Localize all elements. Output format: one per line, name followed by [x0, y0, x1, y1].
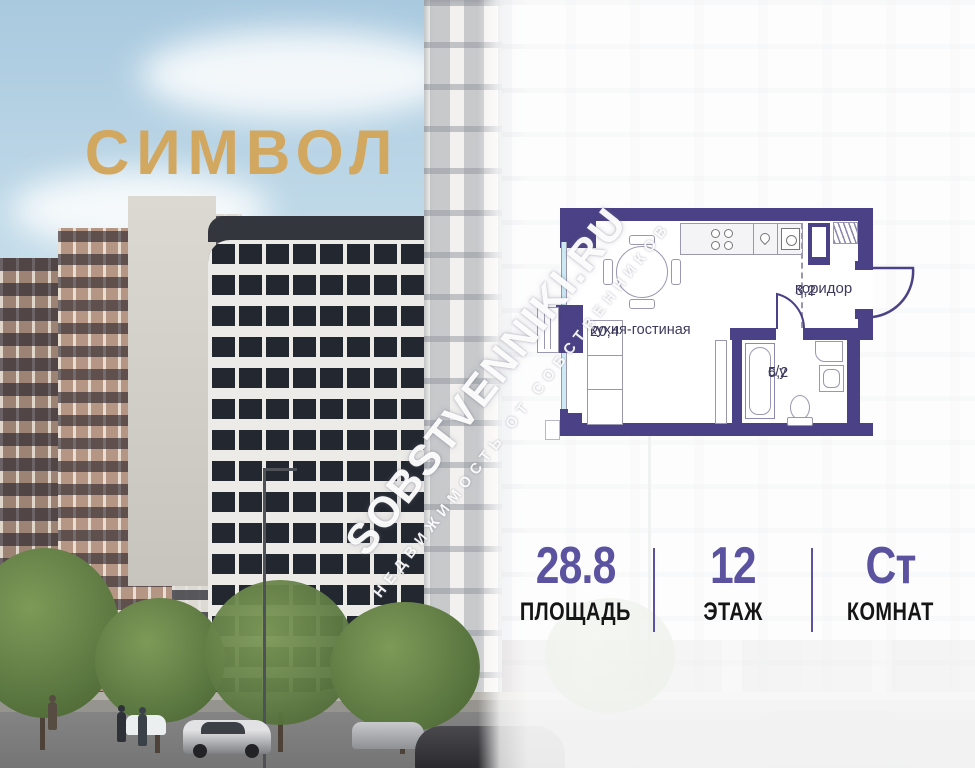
wall	[560, 208, 873, 221]
bathroom-sink	[819, 365, 844, 392]
pedestrian	[117, 712, 126, 742]
wall	[732, 328, 742, 428]
floor-plan: кухня-гостиная 20,4 коридор 3,2 с/у 5,2	[537, 195, 929, 457]
window	[561, 353, 567, 411]
chair	[671, 259, 681, 285]
stats-bar: 28.8 ПЛОЩАДЬ 12 ЭТАЖ Ст КОМНАТ	[498, 540, 968, 640]
stat-rooms-label: КОМНАТ	[836, 600, 945, 625]
facade-box	[545, 420, 560, 440]
wall	[847, 328, 860, 428]
toilet-tank	[787, 417, 813, 426]
stat-rooms: Ст КОМНАТ	[813, 540, 968, 640]
wall	[858, 208, 873, 268]
stat-area: 28.8 ПЛОЩАДЬ	[498, 540, 653, 640]
stat-floor-value: 12	[705, 540, 761, 592]
washer	[815, 341, 843, 362]
wall	[803, 328, 873, 340]
building-roof-band	[208, 216, 436, 242]
stat-area-value: 28.8	[527, 540, 624, 592]
ac-unit	[537, 307, 559, 353]
pedestrian	[138, 714, 147, 746]
stat-floor: 12 ЭТАЖ	[655, 540, 810, 640]
dining-table	[616, 246, 668, 298]
project-logo: СИМВОЛ	[75, 122, 408, 185]
chair	[629, 299, 655, 309]
car-gray	[352, 722, 424, 749]
coat-hangers-icon	[833, 222, 858, 244]
entrance-door-arc	[873, 261, 921, 321]
wall	[560, 208, 568, 244]
listing-card: СИМВОЛ	[0, 0, 975, 768]
wall-pilaster	[556, 305, 583, 353]
stat-rooms-value: Ст	[860, 540, 921, 592]
tv-cabinet	[715, 340, 727, 424]
chair	[603, 259, 613, 285]
pedestrian	[48, 702, 57, 730]
wall	[855, 261, 873, 270]
stat-floor-label: ЭТАЖ	[696, 600, 770, 625]
fridge-icon	[758, 231, 772, 245]
kitchen-counter	[680, 223, 803, 255]
wall	[560, 413, 582, 436]
stat-area-label: ПЛОЩАДЬ	[506, 600, 645, 625]
kitchen-sink-icon	[781, 228, 800, 250]
cloud	[140, 30, 460, 120]
chair	[629, 235, 655, 245]
wardrobe	[808, 223, 830, 261]
tree	[330, 602, 480, 732]
building-concrete-panel	[128, 196, 216, 586]
window	[561, 242, 567, 305]
car-silver	[183, 720, 271, 754]
